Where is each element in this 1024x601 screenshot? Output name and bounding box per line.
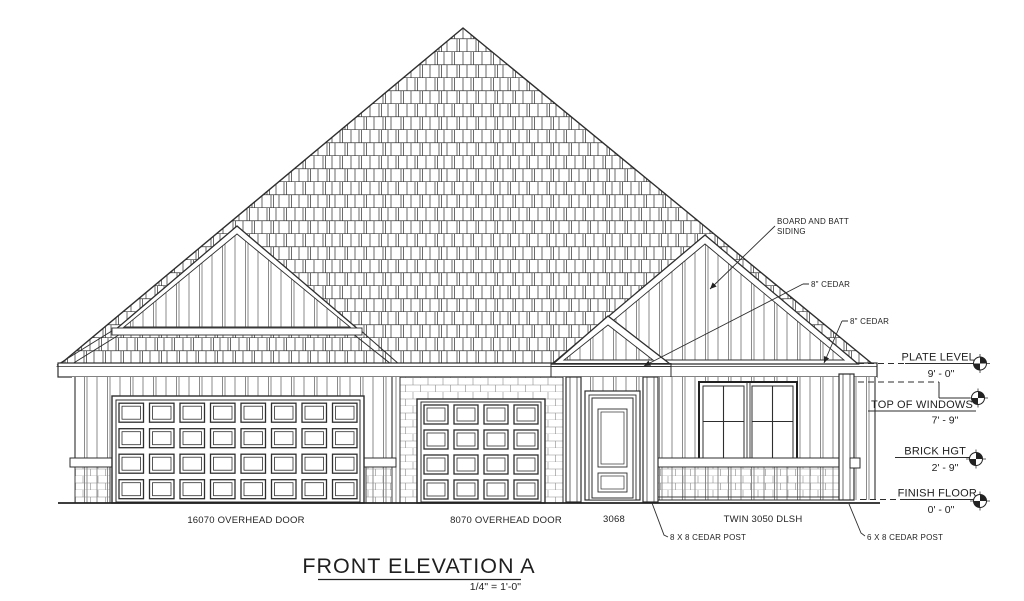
leader-line	[652, 503, 668, 537]
level-value-floor: 0' - 0"	[928, 504, 955, 516]
callout-cedar-upper: 8" CEDAR	[811, 280, 850, 289]
overhead-door-8070	[417, 399, 545, 503]
cedar-post-6x8	[839, 374, 854, 500]
drawing-scale: 1/4" = 1'-0"	[470, 581, 521, 593]
cedar-post-8x8	[643, 377, 658, 502]
callout-post-right: 6 X 8 CEDAR POST	[867, 533, 943, 542]
datum-marker-icon	[966, 450, 986, 469]
level-name-brick: BRICK HGT	[904, 446, 966, 458]
callout-post-left: 8 X 8 CEDAR POST	[670, 533, 746, 542]
opening-labels: 16070 OVERHEAD DOOR 8070 OVERHEAD DOOR 3…	[187, 514, 802, 526]
overhead-door-16070	[112, 396, 364, 503]
fascia-band	[58, 363, 877, 377]
front-door-3068	[585, 391, 640, 500]
level-name-floor: FINISH FLOOR	[898, 488, 977, 500]
level-markers: PLATE LEVEL 9' - 0" TOP OF WINDOWS 7' - …	[858, 352, 990, 517]
level-value-brick: 2' - 9"	[932, 462, 959, 474]
drawing-title: FRONT ELEVATION A	[302, 554, 535, 578]
callout-board-batt: BOARD AND BATT	[777, 217, 849, 226]
elevation-sheet: BOARD AND BATT SIDING 8" CEDAR 8" CEDAR …	[0, 0, 1024, 601]
callout-board-batt-2: SIDING	[777, 227, 806, 236]
level-value-plate: 9' - 0"	[928, 368, 955, 380]
label-16070-door: 16070 OVERHEAD DOOR	[187, 515, 304, 526]
label-twin-window: TWIN 3050 DLSH	[724, 514, 803, 525]
elevation-drawing: BOARD AND BATT SIDING 8" CEDAR 8" CEDAR …	[0, 0, 1024, 601]
twin-window-3050	[699, 382, 797, 462]
label-8070-door: 8070 OVERHEAD DOOR	[450, 515, 562, 526]
leader-line	[849, 504, 865, 536]
callout-cedar-lower: 8" CEDAR	[850, 317, 889, 326]
label-3068-door: 3068	[603, 514, 625, 525]
level-name-windows: TOP OF WINDOWS	[871, 399, 973, 411]
level-value-windows: 7' - 9"	[932, 415, 959, 427]
brick-wainscot	[654, 458, 845, 500]
title-block: FRONT ELEVATION A 1/4" = 1'-0"	[302, 554, 535, 593]
level-name-plate: PLATE LEVEL	[901, 352, 975, 364]
